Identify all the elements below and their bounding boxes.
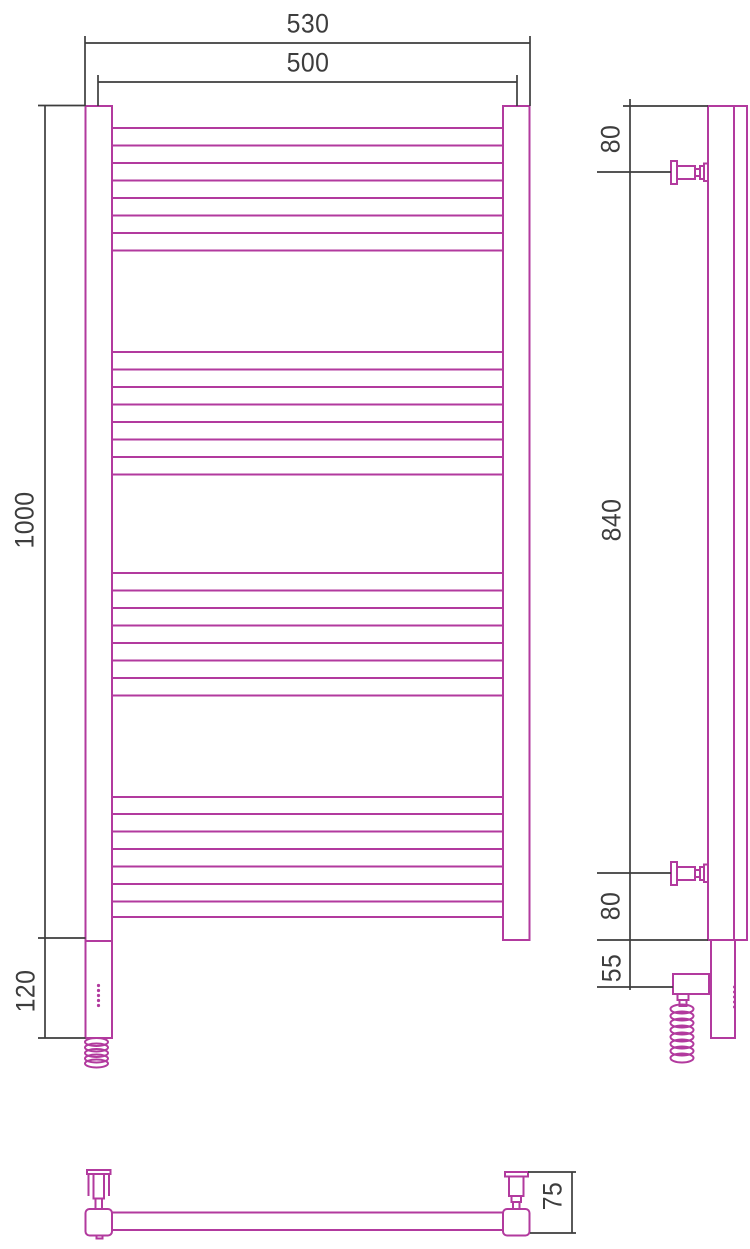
- dim-side-bottom-bracket-offset: 80: [596, 892, 625, 921]
- dim-side-bracket-span: 840: [597, 499, 626, 542]
- dim-side-heater-offset: 55: [597, 954, 626, 983]
- product-outline: [677, 867, 695, 880]
- dim-bottom-depth: 75: [538, 1182, 567, 1211]
- indicator-dot: [97, 989, 100, 992]
- product-outline: [673, 974, 709, 994]
- product-geometry: [85, 106, 747, 1239]
- indicator-dot: [97, 1004, 100, 1007]
- product-outline: [711, 940, 735, 1038]
- product-outline: [86, 106, 113, 941]
- indicator-dot: [733, 986, 736, 989]
- dim-front-rail-width: 500: [287, 48, 330, 77]
- product-outline: [503, 106, 530, 940]
- product-outline: [94, 1174, 105, 1199]
- product-outline: [503, 1209, 530, 1236]
- product-outline: [86, 1209, 113, 1236]
- dim-front-height: 1000: [10, 491, 39, 548]
- product-outline: [509, 1177, 524, 1197]
- indicator-dot: [97, 994, 100, 997]
- product-outline: [96, 1199, 103, 1210]
- indicator-dot: [733, 991, 736, 994]
- product-outline: [708, 106, 747, 940]
- indicator-dot: [733, 1001, 736, 1004]
- indicator-dot: [733, 1006, 736, 1009]
- indicator-dot: [97, 999, 100, 1002]
- product-outline: [704, 164, 708, 182]
- towel-rail-drawing: 530 500 1000 120 80 840 80 55 75: [0, 0, 750, 1249]
- indicator-dot: [733, 996, 736, 999]
- dim-front-heater-section: 120: [11, 970, 40, 1013]
- product-outline: [677, 166, 695, 179]
- indicator-dot: [97, 984, 100, 987]
- dim-front-overall-width: 530: [287, 9, 330, 38]
- dim-side-top-bracket-offset: 80: [596, 125, 625, 154]
- product-outline: [704, 865, 708, 883]
- product-outline: [513, 1202, 520, 1209]
- technical-drawing-canvas: 530 500 1000 120 80 840 80 55 75: [0, 0, 750, 1249]
- product-outline: [97, 1236, 103, 1239]
- dimension-labels: 530 500 1000 120 80 840 80 55 75: [10, 9, 626, 1210]
